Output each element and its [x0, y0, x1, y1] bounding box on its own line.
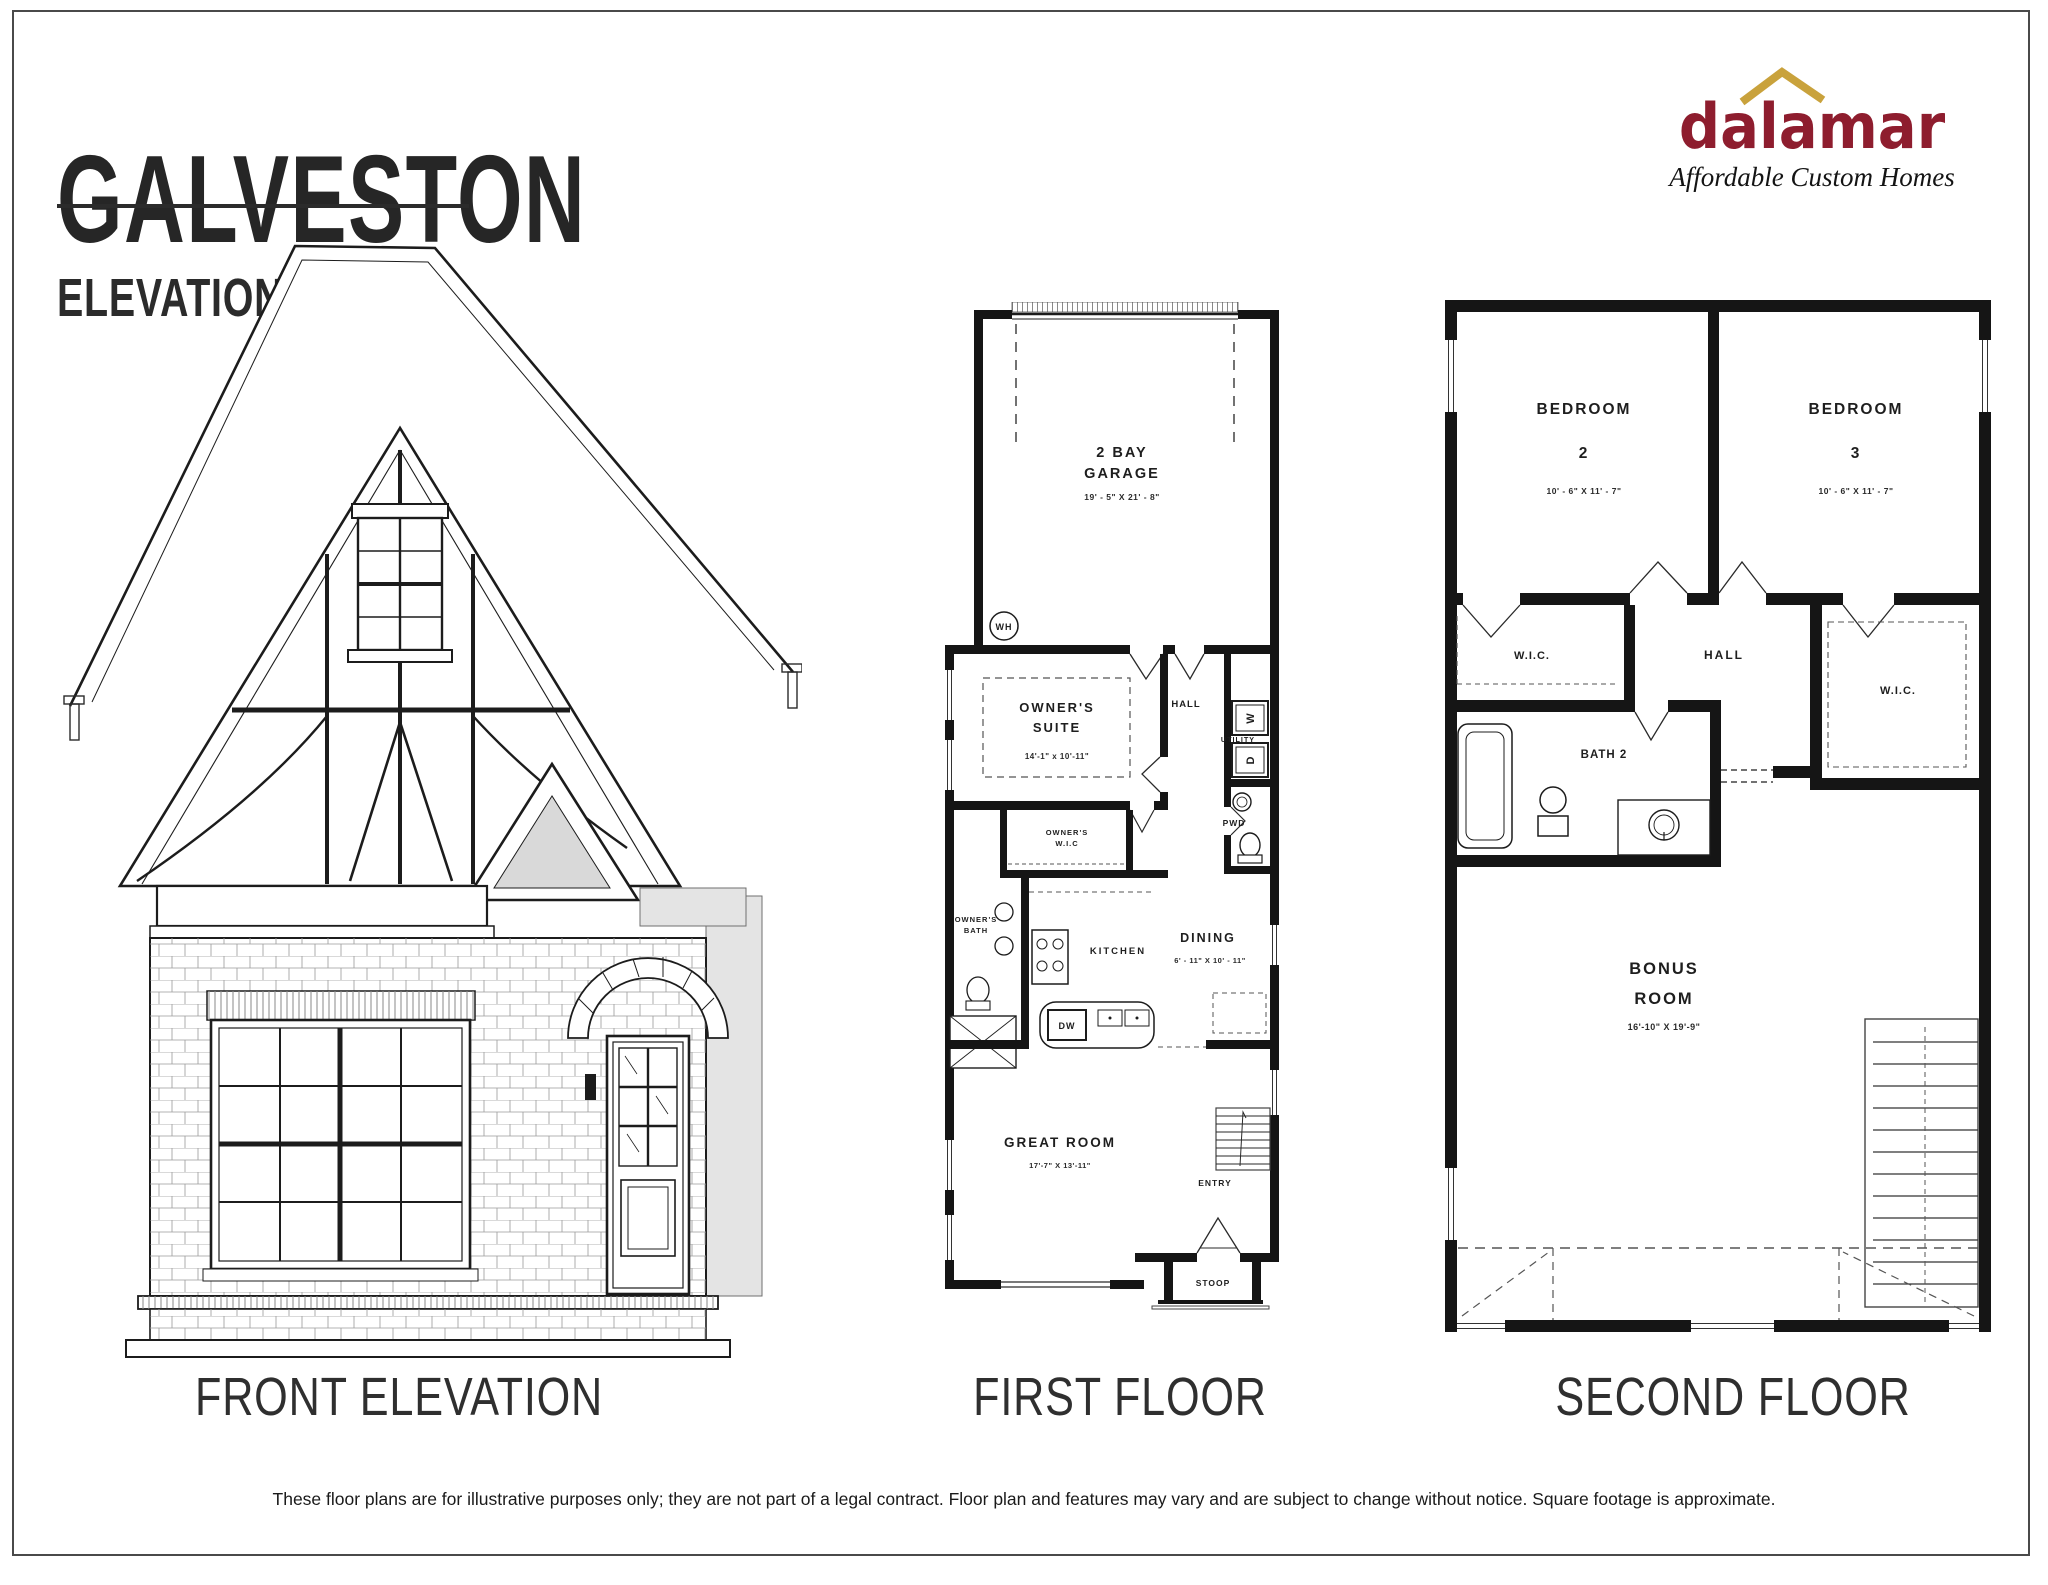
- kitchen-island: DW: [1040, 1002, 1213, 1048]
- hall-label: HALL: [1171, 699, 1200, 710]
- dining-dims: 6' - 11" X 10' - 11": [1174, 956, 1246, 965]
- owners-bath-line1: OWNER'S: [955, 915, 998, 924]
- logo-brand-text: dalamar: [1663, 96, 1961, 158]
- bonus-room: BONUS ROOM 16'-10" X 19'-9": [1458, 960, 1978, 1320]
- foundation: [126, 1296, 730, 1357]
- great-room-label: GREAT ROOM: [1004, 1135, 1116, 1150]
- bedroom-3: BEDROOM 3 10' - 6" X 11' - 7": [1809, 401, 1904, 496]
- owners-wic-line1: OWNER'S: [1046, 828, 1089, 837]
- great-room: GREAT ROOM 17'-7" X 13'-11": [1004, 1135, 1116, 1170]
- entry: ENTRY: [1135, 1178, 1279, 1262]
- bedroom-2: BEDROOM 2 10' - 6" X 11' - 7": [1537, 401, 1632, 496]
- bedroom2-label: BEDROOM: [1537, 401, 1632, 418]
- owners-wic: OWNER'S W.I.C: [954, 801, 1168, 878]
- water-heater: WH: [990, 612, 1018, 640]
- porch-lamp: [585, 1074, 596, 1100]
- stoop-label: STOOP: [1196, 1278, 1231, 1288]
- entry-label: ENTRY: [1198, 1178, 1232, 1188]
- bedroom2-number: 2: [1579, 445, 1590, 462]
- great-room-dims: 17'-7" X 13'-11": [1029, 1161, 1091, 1170]
- staircase: [1216, 1108, 1270, 1170]
- garage: 2 BAY GARAGE 19' - 5" X 21' - 8": [974, 302, 1279, 648]
- owners-suite-dims: 14'-1" x 10'-11": [1025, 752, 1089, 761]
- bedroom-walls: [1445, 300, 1991, 637]
- dining-label: DINING: [1180, 931, 1236, 945]
- kitchen-label: KITCHEN: [1090, 946, 1146, 957]
- owners-suite: OWNER'S SUITE 14'-1" x 10'-11": [983, 678, 1130, 777]
- plan-sheet: { "header": { "title": "GALVESTON", "sub…: [0, 0, 2048, 1585]
- second-floor-plan: BEDROOM 2 10' - 6" X 11' - 7" BEDROOM 3 …: [1428, 292, 2008, 1352]
- dining: DINING 6' - 11" X 10' - 11": [1174, 931, 1266, 1033]
- owners-suite-line1: OWNER'S: [1019, 700, 1095, 715]
- right-wing-wall: [706, 896, 762, 1296]
- caption-first-floor: FIRST FLOOR: [960, 1366, 1280, 1428]
- fascia-band: [150, 886, 494, 938]
- dining-bottom-wall: [1206, 1040, 1270, 1049]
- utility-label: UTILITY: [1221, 735, 1255, 744]
- title-underline: [57, 204, 469, 208]
- washer-label: W: [1245, 712, 1257, 723]
- bonus-line2: ROOM: [1634, 990, 1693, 1008]
- logo-tagline: Affordable Custom Homes: [1652, 162, 1972, 193]
- first-floor-plan: 2 BAY GARAGE 19' - 5" X 21' - 8" WH OWNE…: [920, 302, 1310, 1312]
- caption-second-floor: SECOND FLOOR: [1533, 1366, 1933, 1428]
- wic-right-label: W.I.C.: [1880, 685, 1916, 697]
- disclaimer-text: These floor plans are for illustrative p…: [224, 1489, 1824, 1510]
- garage-dims: 19' - 5" X 21' - 8": [1084, 492, 1159, 502]
- powder-label: PWD: [1223, 818, 1246, 828]
- front-wall: [945, 1280, 1144, 1289]
- garage-label-line2: GARAGE: [1084, 466, 1160, 482]
- hall-label: HALL: [1704, 648, 1744, 662]
- wic-left: W.I.C.: [1445, 605, 1635, 712]
- bonus-dims: 16'-10" X 19'-9": [1628, 1022, 1701, 1032]
- water-heater-label: WH: [996, 622, 1013, 632]
- caption-front-elevation: FRONT ELEVATION: [195, 1366, 595, 1428]
- kitchen: KITCHEN: [1029, 892, 1155, 984]
- builder-logo: dalamar Affordable Custom Homes: [1652, 60, 1972, 193]
- owners-bath: OWNER'S BATH: [950, 878, 1029, 1068]
- dryer-label: D: [1245, 756, 1257, 765]
- front-window: [203, 991, 478, 1281]
- bedroom3-dims: 10' - 6" X 11' - 7": [1819, 486, 1894, 496]
- gable-window: [348, 504, 452, 662]
- bath2-label: BATH 2: [1581, 749, 1628, 761]
- staircase: [1865, 1019, 1978, 1307]
- front-elevation-drawing: [62, 236, 802, 1362]
- bath-2: BATH 2: [1445, 700, 1721, 867]
- stoop: STOOP: [1152, 1262, 1269, 1309]
- dishwasher-label: DW: [1059, 1021, 1076, 1031]
- cased-opening: [1721, 766, 1810, 782]
- bedroom3-number: 3: [1851, 445, 1862, 462]
- owners-wic-line2: W.I.C: [1055, 839, 1078, 848]
- bedroom3-label: BEDROOM: [1809, 401, 1904, 418]
- bath-bottom-wall: [945, 1040, 1029, 1049]
- wic-right: W.I.C.: [1810, 605, 1991, 790]
- owners-bath-line2: BATH: [964, 926, 988, 935]
- bonus-line1: BONUS: [1629, 960, 1699, 978]
- garage-label-line1: 2 BAY: [1096, 445, 1147, 461]
- wic-left-label: W.I.C.: [1514, 650, 1550, 662]
- bedroom2-dims: 10' - 6" X 11' - 7": [1547, 486, 1622, 496]
- owners-suite-line2: SUITE: [1033, 720, 1081, 735]
